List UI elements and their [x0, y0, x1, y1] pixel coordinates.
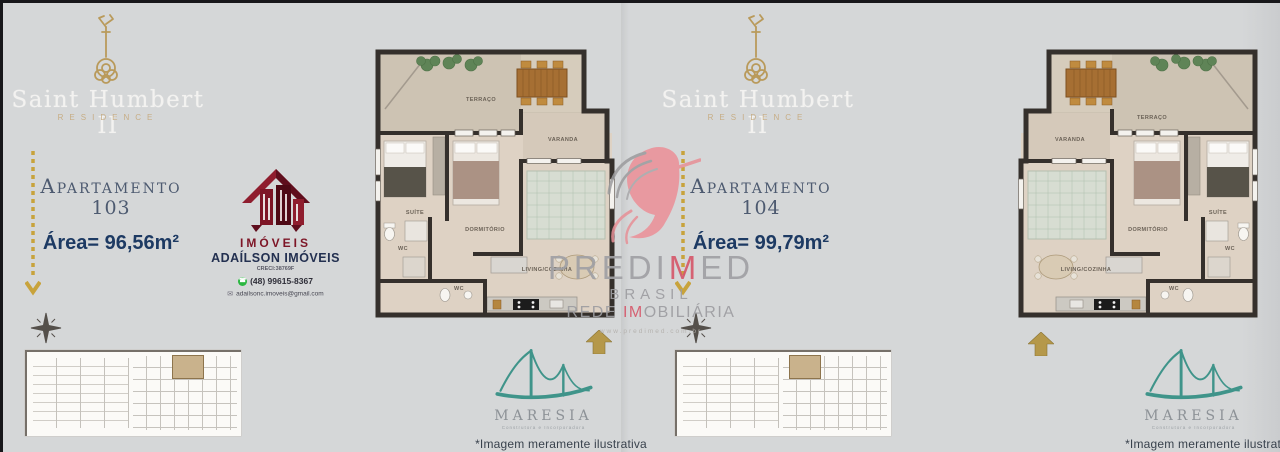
predimed-url: www.predimed.com.br: [531, 328, 771, 335]
siteplan-unit-highlight: [172, 355, 204, 379]
building-subtitle: RESIDENCE: [3, 113, 213, 122]
predimed-name: PREDIMED: [531, 251, 771, 284]
room-label-varanda: VARANDA: [548, 137, 578, 143]
agency-creci: CRECI:38769F: [203, 266, 348, 272]
siteplan-unit-highlight: [789, 355, 821, 379]
vintage-key-icon: [89, 13, 123, 87]
agency-logo-caption: IMÓVEIS: [203, 236, 348, 250]
site-location-plan: [25, 350, 241, 436]
maresia-name: MARESIA: [471, 408, 616, 424]
predimed-brasil: BRASIL: [531, 286, 771, 303]
panel-apartment-103: Saint Humbert II RESIDENCE Apartamento 1…: [3, 3, 653, 452]
image-disclaimer: *Imagem meramente ilustrativa: [1121, 437, 1280, 451]
room-label-wc2: WC: [454, 286, 464, 292]
apartment-label: Apartamento: [21, 175, 201, 197]
maresia-logo-block: MARESIA Construtora e Incorporadora: [1121, 344, 1266, 430]
siteplan-parking-grid: [33, 358, 129, 428]
room-label-suite: SUÍTE: [406, 208, 424, 216]
room-label-varanda: VARANDA: [1055, 137, 1085, 143]
agency-card: IMÓVEIS ADAÍLSON IMÓVEIS CRECI:38769F ☎(…: [203, 163, 348, 298]
maresia-name: MARESIA: [1121, 408, 1266, 424]
agency-house-logo-icon: [238, 163, 314, 235]
agency-email: ✉adailsonc.imoveis@gmail.com: [203, 290, 348, 298]
hummingbird-watermark-icon: [601, 141, 701, 251]
room-label-terraco: TERRAÇO: [466, 97, 496, 103]
agency-phone: ☎(48) 99615-8367: [203, 276, 348, 286]
predimed-watermark: PREDIMED BRASIL REDE IMOBILIÁRIA www.pre…: [531, 251, 771, 335]
floorplan-104: TERRAÇO VARANDA SUÍTE DORMITÓRIO LIVING/…: [1017, 49, 1258, 323]
apartment-area: Área= 96,56m²: [21, 232, 201, 255]
panel-apartment-104: Saint Humbert II RESIDENCE Apartamento 1…: [653, 3, 1280, 452]
predimed-rede-imobiliaria: REDE IMOBILIÁRIA: [531, 304, 771, 322]
vintage-key-icon: [739, 13, 773, 87]
email-icon: ✉: [227, 291, 233, 298]
apartment-info: Apartamento 103 Área= 96,56m²: [21, 175, 201, 255]
room-label-dormitorio: DORMITÓRIO: [1128, 225, 1168, 233]
maresia-tagline: Construtora e Incorporadora: [471, 425, 616, 430]
entrance-arrow-icon: [1028, 332, 1054, 356]
maresia-tagline: Construtora e Incorporadora: [1121, 425, 1266, 430]
siteplan-parking-grid: [683, 358, 779, 428]
compass-rose-icon: [29, 311, 63, 345]
room-label-wc1: WC: [1225, 246, 1235, 252]
room-label-wc1: WC: [398, 246, 408, 252]
room-label-dormitorio: DORMITÓRIO: [465, 225, 505, 233]
apartment-number: 103: [21, 197, 201, 219]
maresia-bridge-icon: [1144, 344, 1244, 402]
room-label-wc2: WC: [1169, 286, 1179, 292]
maresia-bridge-icon: [494, 344, 594, 402]
image-disclaimer: *Imagem meramente ilustrativa: [471, 437, 651, 451]
building-subtitle: RESIDENCE: [653, 113, 863, 122]
room-label-living: LIVING/COZINHA: [1061, 267, 1112, 273]
agency-name: ADAÍLSON IMÓVEIS: [203, 251, 348, 265]
site-location-plan: [675, 350, 891, 436]
flyer-canvas: Saint Humbert II RESIDENCE Apartamento 1…: [0, 0, 1280, 452]
room-label-terraco: TERRAÇO: [1137, 115, 1167, 121]
room-label-suite: SUÍTE: [1209, 208, 1227, 216]
whatsapp-icon: ☎: [238, 277, 247, 286]
maresia-logo-block: MARESIA Construtora e Incorporadora: [471, 344, 616, 430]
